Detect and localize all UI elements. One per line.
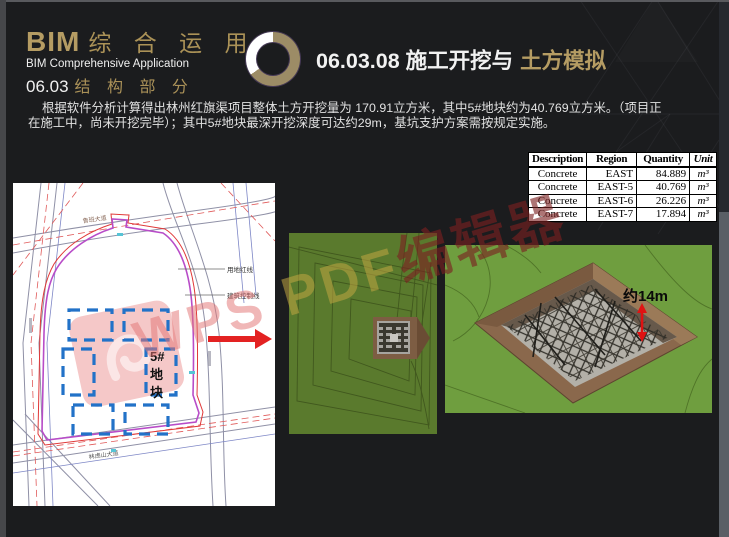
table-row: Concrete EAST-5 40.769 m³ [529, 181, 717, 195]
quantity-table: Description Region Quantity Unit Concret… [528, 152, 717, 222]
col-header-description: Description [529, 153, 587, 167]
block-label-5: 5# 地 块 [150, 349, 165, 400]
brand-en: BIM [26, 26, 80, 57]
callout-red-line-label: 用地红线 [227, 265, 254, 274]
scrollbar-track[interactable] [719, 2, 729, 212]
table-header-row: Description Region Quantity Unit [529, 153, 717, 167]
page-title: 06.03.08 施工开挖与土方模拟 [316, 44, 606, 75]
brand-title: BIM综 合 运 用 [26, 24, 256, 58]
brand-subtitle: BIM Comprehensive Application [26, 58, 189, 70]
window-left-edge [0, 0, 6, 537]
section-label: 06.03结 构 部 分 [26, 73, 194, 97]
donut-hole [257, 43, 289, 75]
body-line-1: 根据软件分析计算得出林州红旗渠项目整体土方开挖量为 170.91立方米，其中5#… [28, 101, 718, 116]
slide-viewer: BIM综 合 运 用 BIM Comprehensive Application… [0, 0, 729, 537]
donut-ring-icon [246, 32, 300, 86]
table-row: Concrete EAST-7 17.894 m³ [529, 208, 717, 222]
page-title-accent: 土方模拟 [520, 49, 606, 73]
section-name: 结 构 部 分 [75, 79, 194, 96]
body-paragraph: 根据软件分析计算得出林州红旗渠项目整体土方开挖量为 170.91立方米，其中5#… [28, 101, 718, 131]
section-number: 06.03 [26, 77, 69, 96]
col-header-quantity: Quantity [637, 153, 690, 167]
terrain-model-overview [289, 233, 437, 434]
body-line-2: 在施工中，尚未开挖完毕）；其中5#地块最深开挖深度可达约29m，基坑支护方案需按… [28, 116, 718, 131]
scrollbar-thumb[interactable] [719, 212, 729, 537]
svg-text:5#: 5# [150, 349, 165, 364]
window-top-edge [0, 0, 729, 2]
depth-label: 约14m [623, 287, 668, 305]
brand-cn: 综 合 运 用 [88, 30, 255, 56]
col-header-region: Region [587, 153, 637, 167]
svg-text:块: 块 [150, 385, 164, 400]
excavation-model-detail: 约14m [445, 245, 712, 413]
callout-control-line-label: 建筑控制线 [227, 291, 260, 300]
table-row: Concrete EAST-6 26.226 m³ [529, 194, 717, 208]
flow-arrow-right [208, 329, 272, 349]
page-title-main: 06.03.08 施工开挖与 [316, 49, 513, 73]
col-header-unit: Unit [690, 153, 717, 167]
svg-text:地: 地 [150, 367, 163, 382]
table-row: Concrete EAST 84.889 m³ [529, 167, 717, 181]
